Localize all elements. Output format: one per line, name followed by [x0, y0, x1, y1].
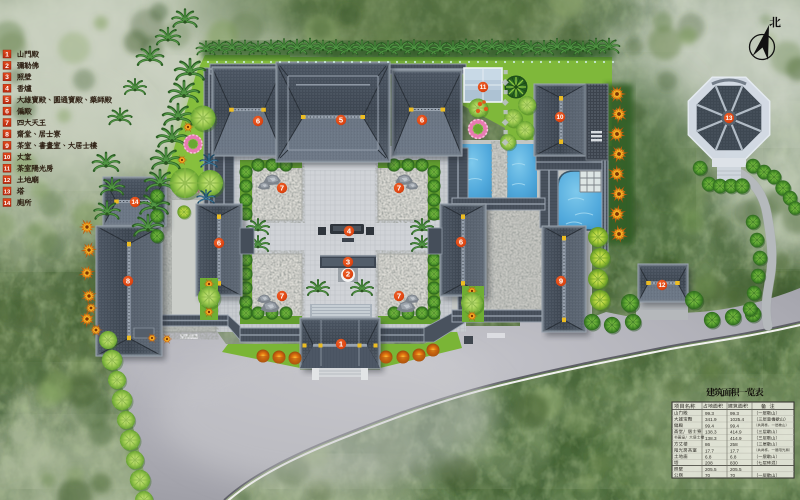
svg-text:14: 14	[132, 199, 139, 206]
svg-text:8: 8	[5, 131, 9, 138]
svg-text:1: 1	[5, 51, 9, 58]
svg-text:11: 11	[4, 167, 11, 173]
svg-text:12: 12	[4, 178, 10, 184]
svg-text:10: 10	[557, 114, 564, 121]
svg-text:6: 6	[5, 109, 9, 116]
svg-text:3: 3	[346, 258, 350, 267]
svg-text:10: 10	[4, 155, 10, 161]
svg-text:99.4: 99.4	[705, 423, 714, 428]
svg-text:99.4: 99.4	[730, 423, 739, 428]
svg-text:13: 13	[4, 189, 11, 195]
svg-text:14: 14	[4, 201, 11, 207]
svg-text:2: 2	[346, 270, 350, 279]
svg-text:7: 7	[280, 292, 284, 301]
svg-text:138.3: 138.3	[705, 436, 717, 441]
svg-text:7: 7	[280, 184, 284, 193]
svg-text:70: 70	[730, 473, 736, 478]
svg-text:5: 5	[5, 97, 9, 104]
svg-text:9: 9	[559, 277, 563, 286]
svg-text:17.7: 17.7	[730, 448, 739, 453]
svg-text:205.5: 205.5	[730, 467, 742, 472]
svg-text:6: 6	[459, 238, 463, 247]
svg-text:99.3: 99.3	[705, 411, 714, 416]
svg-text:6: 6	[217, 239, 221, 248]
svg-text:7: 7	[397, 184, 401, 193]
svg-text:9: 9	[5, 143, 9, 150]
svg-text:258: 258	[730, 442, 738, 447]
svg-text:17.7: 17.7	[705, 448, 714, 453]
svg-text:4: 4	[5, 86, 9, 93]
svg-text:208: 208	[705, 461, 713, 466]
svg-text:70: 70	[705, 473, 711, 478]
svg-text:1025.4: 1025.4	[730, 417, 744, 422]
svg-text:3: 3	[5, 74, 9, 81]
svg-text:414.9: 414.9	[730, 430, 742, 435]
svg-text:341.9: 341.9	[705, 417, 717, 422]
svg-text:8: 8	[126, 277, 130, 286]
svg-text:7: 7	[397, 292, 401, 301]
svg-text:7: 7	[5, 120, 9, 127]
svg-text:6.8: 6.8	[730, 455, 737, 460]
svg-text:830: 830	[730, 461, 738, 466]
svg-text:86: 86	[705, 442, 711, 447]
svg-text:6.8: 6.8	[705, 455, 712, 460]
svg-text:138.3: 138.3	[705, 430, 717, 435]
svg-text:99.3: 99.3	[730, 411, 739, 416]
svg-text:2: 2	[5, 63, 9, 70]
svg-text:414.9: 414.9	[730, 436, 742, 441]
svg-text:13: 13	[726, 115, 733, 122]
svg-text:205.5: 205.5	[705, 467, 717, 472]
svg-text:6: 6	[256, 117, 260, 126]
svg-text:6: 6	[420, 116, 424, 125]
svg-text:12: 12	[659, 282, 666, 289]
svg-text:11: 11	[480, 84, 487, 91]
